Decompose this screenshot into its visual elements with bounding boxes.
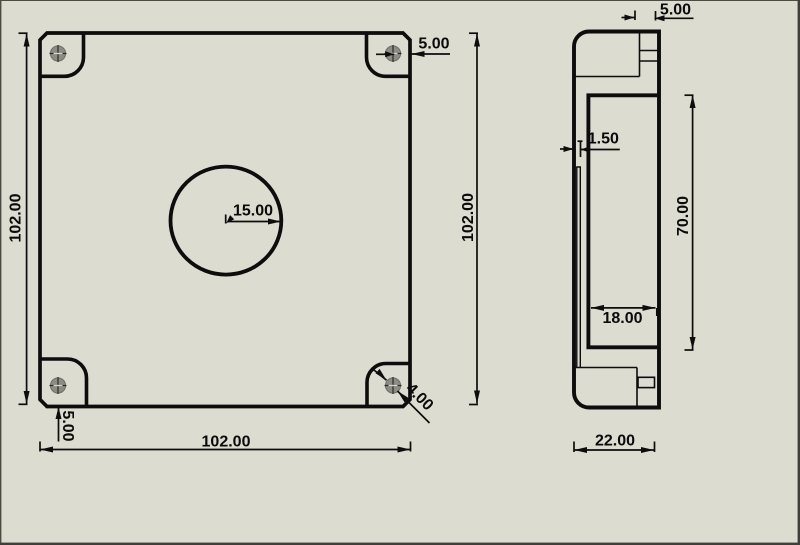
- svg-text:15.00: 15.00: [233, 203, 273, 220]
- svg-text:102.00: 102.00: [7, 193, 24, 242]
- svg-text:5.00: 5.00: [59, 410, 76, 441]
- svg-text:5.00: 5.00: [418, 36, 449, 53]
- svg-text:70.00: 70.00: [675, 196, 692, 236]
- svg-text:22.00: 22.00: [595, 433, 635, 450]
- svg-text:5.00: 5.00: [660, 2, 691, 19]
- svg-text:102.00: 102.00: [202, 434, 251, 451]
- svg-text:18.00: 18.00: [602, 310, 642, 327]
- svg-text:102.00: 102.00: [460, 193, 477, 242]
- svg-text:1.50: 1.50: [588, 131, 619, 148]
